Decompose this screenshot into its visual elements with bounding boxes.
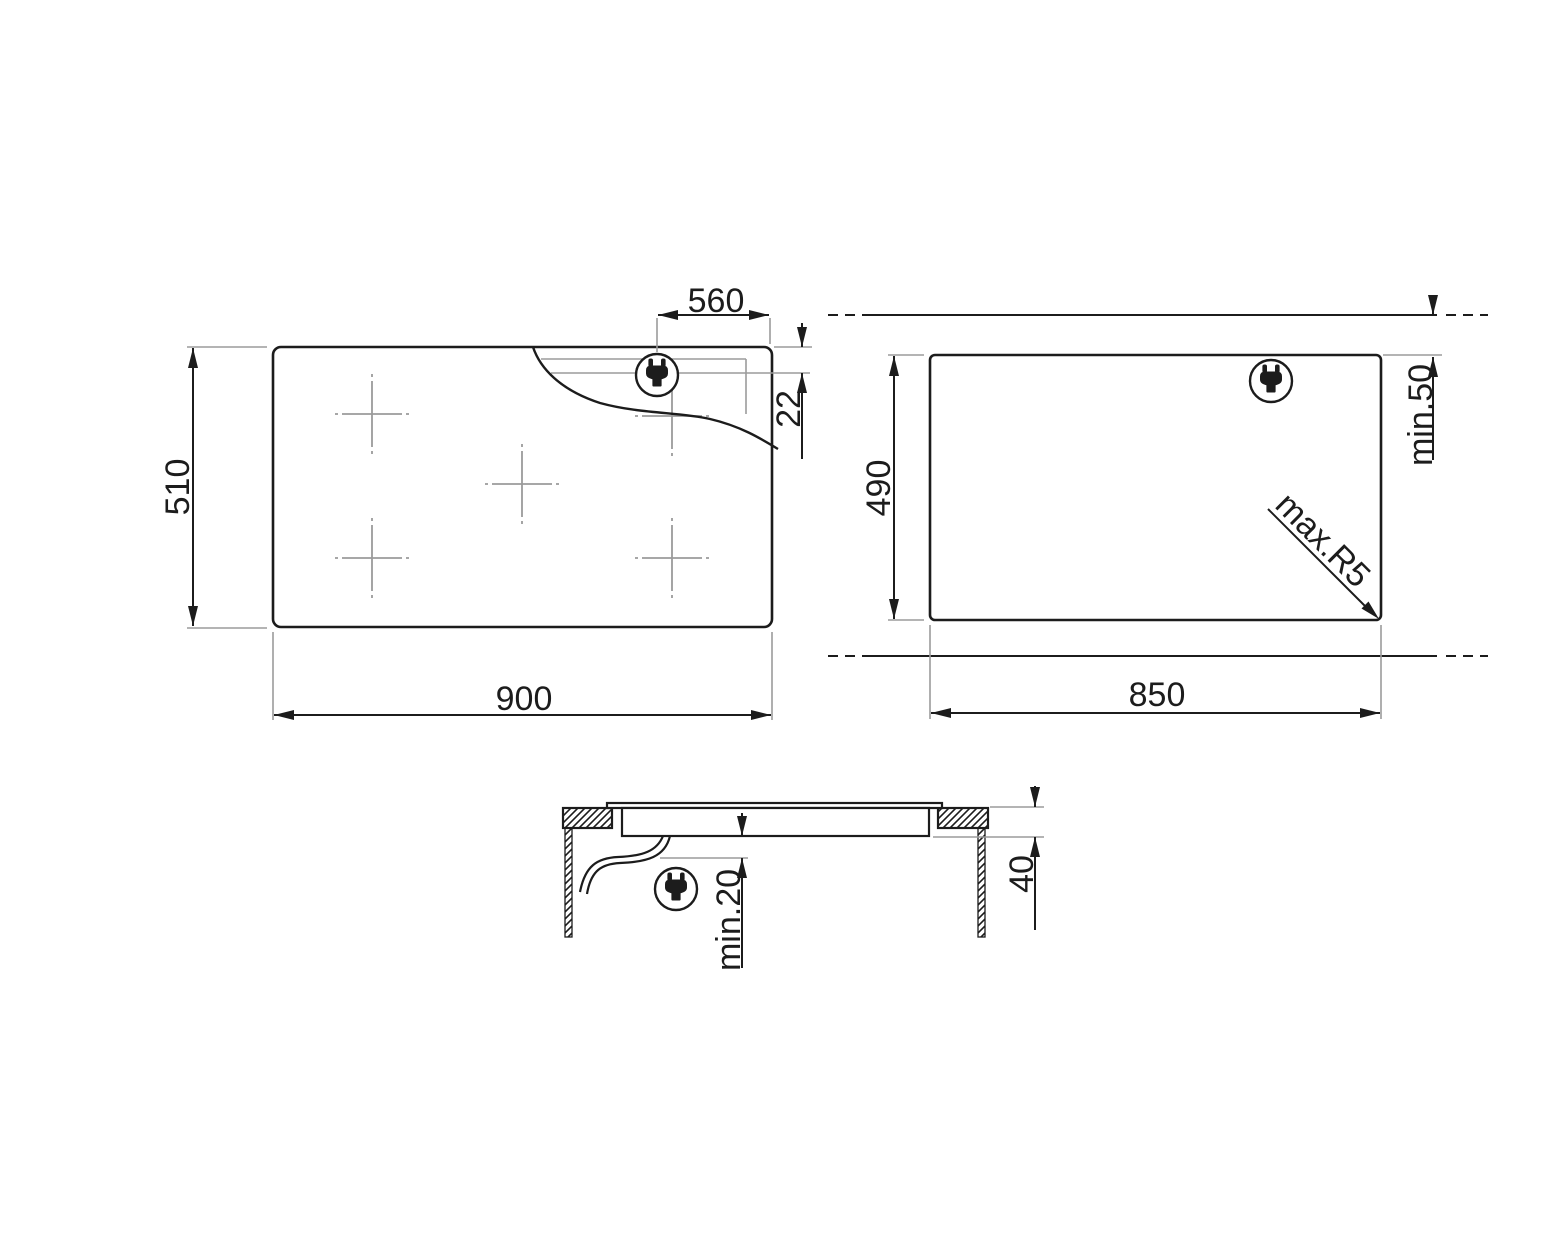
hob-top-view: 560 22 510 900 — [159, 282, 812, 720]
dim-900-label: 900 — [496, 680, 553, 718]
arrowhead — [797, 373, 807, 393]
arrowhead — [751, 710, 771, 720]
arrowhead — [274, 710, 294, 720]
cabinet-side-panel — [978, 828, 985, 937]
dim-min20-label: min.20 — [710, 869, 748, 971]
dim-850-label: 850 — [1129, 676, 1186, 714]
worktop-section — [938, 808, 988, 828]
arrowhead — [188, 348, 198, 368]
power-plug-icon — [655, 868, 697, 910]
dim-490-label: 490 — [860, 460, 898, 517]
dimension-900: 900 — [273, 632, 772, 720]
power-plug-icon — [636, 354, 678, 396]
dimension-850: 850 — [930, 625, 1381, 719]
power-plug-icon — [1250, 360, 1292, 402]
arrowhead — [889, 599, 899, 619]
cutout-plan-view: 490 850 min.50 max.R5 — [828, 295, 1488, 719]
dimension-490: 490 — [860, 355, 924, 620]
installation-drawing: 560 22 510 900 — [0, 0, 1559, 1257]
hob-body-section — [622, 808, 929, 836]
dimension-min50: min.50 — [1383, 295, 1442, 466]
arrowhead — [1428, 295, 1438, 315]
dim-510-label: 510 — [159, 459, 197, 516]
dimension-560: 560 — [657, 282, 770, 352]
dim-22-label: 22 — [770, 390, 808, 428]
dim-min50-label: min.50 — [1402, 364, 1440, 466]
cabinet-side-panel — [565, 828, 572, 937]
dim-40-label: 40 — [1003, 855, 1041, 893]
dim-560-label: 560 — [688, 282, 745, 320]
drawing-canvas: 560 22 510 900 — [0, 0, 1559, 1257]
dimension-22: 22 — [770, 323, 812, 459]
arrowhead — [797, 327, 807, 347]
worktop-section — [563, 808, 612, 828]
arrowhead — [1360, 708, 1380, 718]
arrowhead — [749, 310, 769, 320]
arrowhead — [188, 606, 198, 626]
arrowhead — [658, 310, 678, 320]
arrowhead — [1030, 787, 1040, 807]
installation-section-view: min.20 40 — [563, 786, 1044, 971]
dimension-510: 510 — [159, 347, 267, 628]
arrowhead — [931, 708, 951, 718]
arrowhead — [889, 356, 899, 376]
cutout-outline — [930, 355, 1381, 620]
arrowhead — [1030, 837, 1040, 857]
